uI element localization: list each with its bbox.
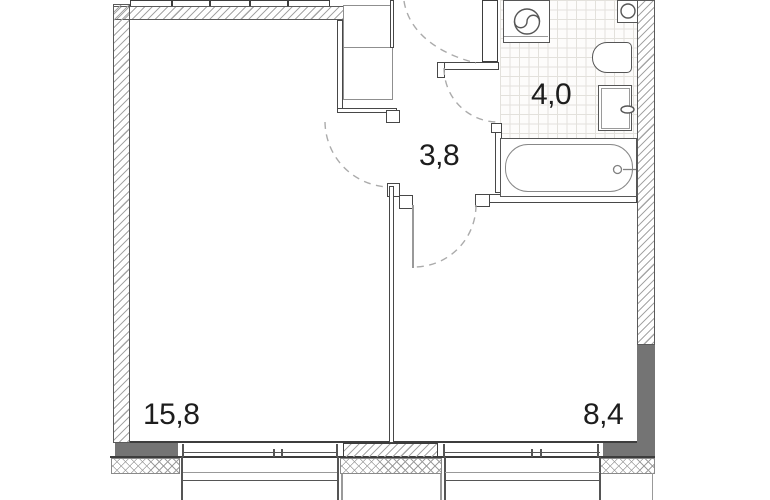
- window-mullion: [273, 449, 275, 457]
- balcony-left-rail: [337, 457, 339, 500]
- apartment-floor-plan: 15,8 3,8 4,0 8,4: [0, 0, 770, 500]
- living-bedroom-wall: [389, 186, 395, 443]
- room-area-label-bedroom: 8,4: [583, 400, 623, 430]
- vestibule-wall-jamb: [437, 62, 445, 78]
- window-mullion: [540, 449, 542, 457]
- insulation-band-left: [111, 458, 180, 474]
- balcony-left-rail: [181, 457, 183, 500]
- room-area-label-hallway: 3,8: [419, 141, 459, 171]
- window-left-sill: [182, 452, 338, 453]
- bedroom-door-jamb-right: [475, 194, 490, 207]
- window-mullion: [531, 449, 533, 457]
- window-mullion: [281, 449, 283, 457]
- wardrobe-shelf-line: [344, 47, 392, 48]
- washbasin-icon: [617, 0, 638, 23]
- bathtub-icon: [500, 138, 637, 197]
- balcony-divider: [652, 473, 654, 500]
- living-door-arc: [325, 122, 388, 187]
- bedroom-door-jamb-left: [399, 195, 413, 209]
- bedroom-door-arc: [414, 205, 476, 267]
- closet-wall-stub: [390, 0, 394, 48]
- vanity-basin-inner: [601, 88, 630, 129]
- bottom-center-pier: [343, 443, 438, 458]
- vestibule-hallway-wall: [438, 62, 499, 70]
- window-jamb: [182, 444, 184, 457]
- balcony-right-rail: [599, 457, 601, 500]
- right-wall-upper: [637, 0, 655, 345]
- balcony-right-rail: [444, 457, 446, 500]
- entrance-door-arc: [404, 1, 476, 63]
- toilet-icon: [592, 42, 632, 73]
- living-door-jamb-top: [386, 110, 401, 123]
- balcony-right-edge: [445, 472, 600, 473]
- vestibule-wall: [482, 0, 499, 62]
- left-wall: [113, 4, 130, 443]
- room-area-label-living: 15,8: [143, 400, 199, 430]
- top-wall: [113, 6, 345, 20]
- balcony-left-edge: [183, 472, 337, 473]
- bathtub-basin: [505, 144, 633, 192]
- window-jamb: [443, 444, 445, 457]
- balcony-left-edge: [183, 480, 337, 481]
- washing-machine-panel-line: [504, 36, 548, 37]
- insulation-band-right: [600, 458, 655, 474]
- balcony-divider: [440, 474, 442, 500]
- right-wall-lower-solid: [637, 345, 655, 458]
- balcony-right-edge: [445, 480, 600, 481]
- bedroom-door-leaf: [412, 205, 414, 268]
- window-jamb: [336, 444, 338, 457]
- window-right-sill: [443, 452, 600, 453]
- window-jamb: [597, 444, 599, 457]
- vanity-sink-icon: [598, 85, 632, 131]
- room-area-label-bathroom: 4,0: [531, 80, 571, 110]
- balcony-divider: [341, 474, 343, 500]
- bathroom-door-arc: [444, 68, 497, 122]
- washing-machine-icon: [503, 0, 550, 43]
- insulation-band-center: [340, 458, 442, 474]
- wardrobe-icon: [343, 5, 393, 100]
